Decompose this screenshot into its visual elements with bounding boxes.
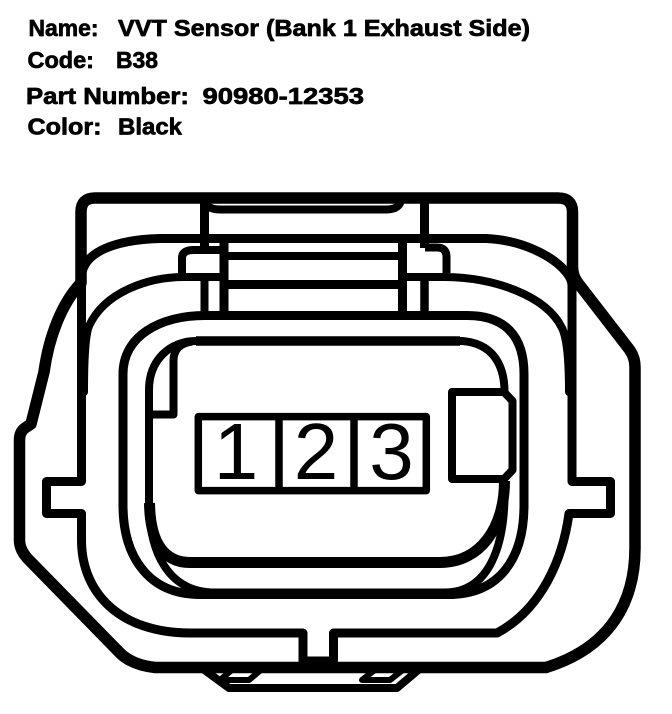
svg-text:1: 1	[214, 407, 259, 496]
svg-text:Part Number:: Part Number:	[26, 83, 189, 109]
svg-text:Color:: Color:	[28, 114, 102, 140]
svg-text:90980-12353: 90980-12353	[203, 83, 365, 109]
svg-text:Code:: Code:	[28, 47, 95, 73]
svg-text:B38: B38	[116, 47, 158, 73]
svg-text:Name:: Name:	[29, 15, 99, 41]
svg-text:VVT Sensor (Bank 1 Exhaust Sid: VVT Sensor (Bank 1 Exhaust Side)	[118, 15, 530, 41]
svg-text:2: 2	[294, 407, 339, 496]
svg-text:Black: Black	[118, 114, 182, 140]
svg-text:3: 3	[369, 407, 414, 496]
